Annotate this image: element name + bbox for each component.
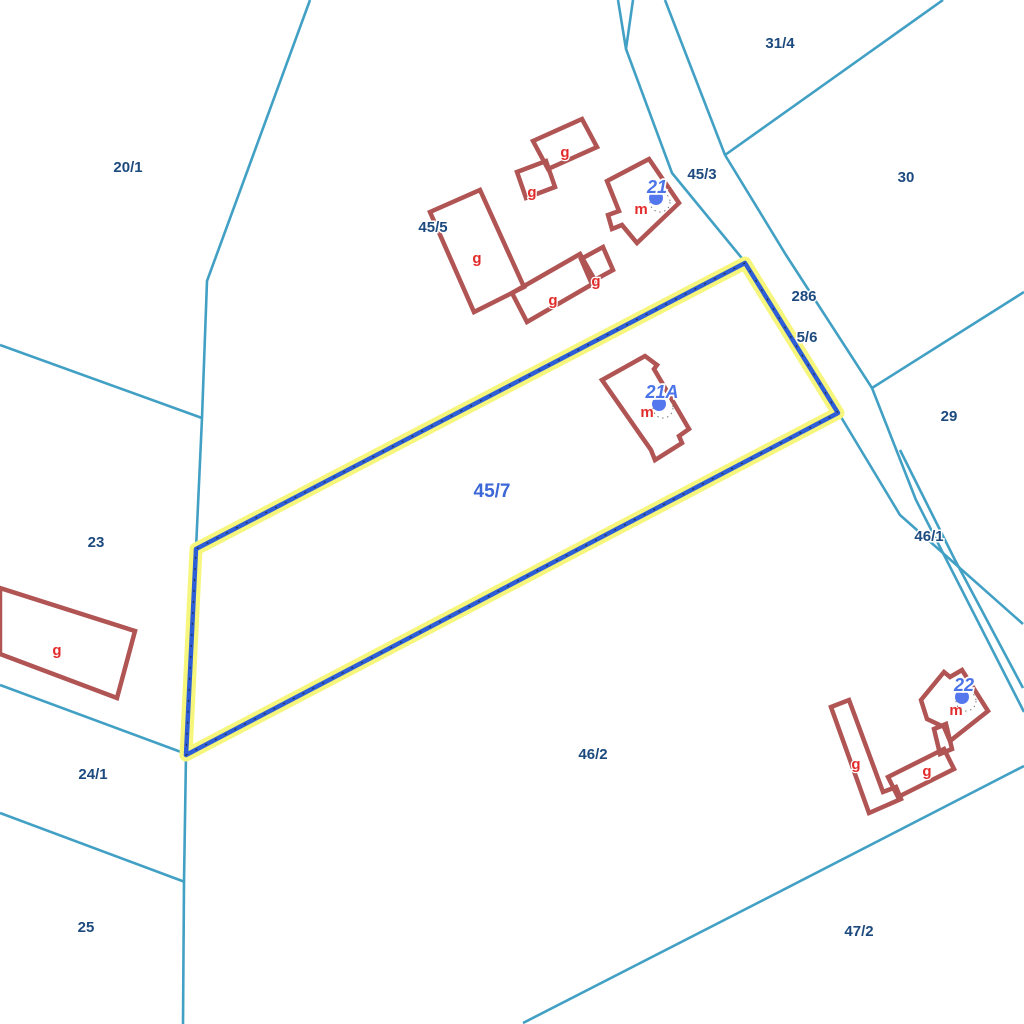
map-viewport[interactable]: 20/131/43045/345/52865/62946/12324/12546… [0, 0, 1024, 1024]
building-use-label-g-6: g [851, 756, 860, 773]
parcel-label-25: 25 [78, 919, 95, 936]
building-use-label-m-8: m [634, 201, 647, 218]
road-east-edge-top [665, 0, 725, 155]
building-use-label-g-1: g [527, 184, 536, 201]
building-low-shed-22 [888, 749, 954, 797]
parcel-label-29: 29 [941, 408, 958, 425]
parcel-label-46-1: 46/1 [914, 528, 943, 545]
parcel-label-30: 30 [898, 169, 915, 186]
road-west-edge-lower [838, 412, 1023, 624]
address-number-22: 22 [953, 675, 974, 695]
building-tall-shed-22 [831, 700, 901, 813]
road-fork-top [626, 0, 633, 49]
boundary-31-4-30 [725, 0, 943, 155]
building-use-label-g-2: g [472, 250, 481, 267]
building-use-label-g-5: g [52, 642, 61, 659]
boundary-46-2-47-2 [523, 766, 1024, 1023]
parcel-label-23: 23 [88, 534, 105, 551]
parcel-label-45-3: 45/3 [687, 166, 716, 183]
selected-parcel-45-7-halo [186, 263, 838, 755]
parcel-label-47-2: 47/2 [844, 923, 873, 940]
selected-parcel-label-45-7: 45/7 [474, 481, 511, 502]
parcel-label-20-1: 20/1 [113, 159, 142, 176]
boundary-20-1-23 [0, 345, 202, 418]
address-number-21A: 21A [644, 382, 678, 402]
building-shed-left-edge [0, 588, 135, 698]
building-use-label-g-7: g [922, 763, 931, 780]
parcel-label-46-2: 46/2 [578, 746, 607, 763]
boundary-23-24-1 [0, 685, 181, 752]
parcel-label-45-5: 45/5 [418, 219, 447, 236]
building-use-label-m-9: m [640, 404, 653, 421]
parcel-label-5-6: 5/6 [797, 329, 818, 346]
parcel-label-24-1: 24/1 [78, 766, 107, 783]
building-use-label-g-0: g [560, 144, 569, 161]
building-use-label-g-4: g [591, 273, 600, 290]
parcel-label-31-4: 31/4 [765, 35, 795, 52]
boundary-30-29 [872, 292, 1024, 388]
parcel-label-286: 286 [791, 288, 816, 305]
road-east-edge-lower [872, 388, 1024, 712]
address-number-21: 21 [646, 177, 667, 197]
building-use-label-g-3: g [548, 292, 557, 309]
cadastral-map-canvas[interactable]: 20/131/43045/345/52865/62946/12324/12546… [0, 0, 1024, 1024]
building-use-label-m-10: m [949, 702, 962, 719]
boundary-west-long [183, 0, 310, 1024]
boundary-24-1-25 [0, 813, 185, 882]
